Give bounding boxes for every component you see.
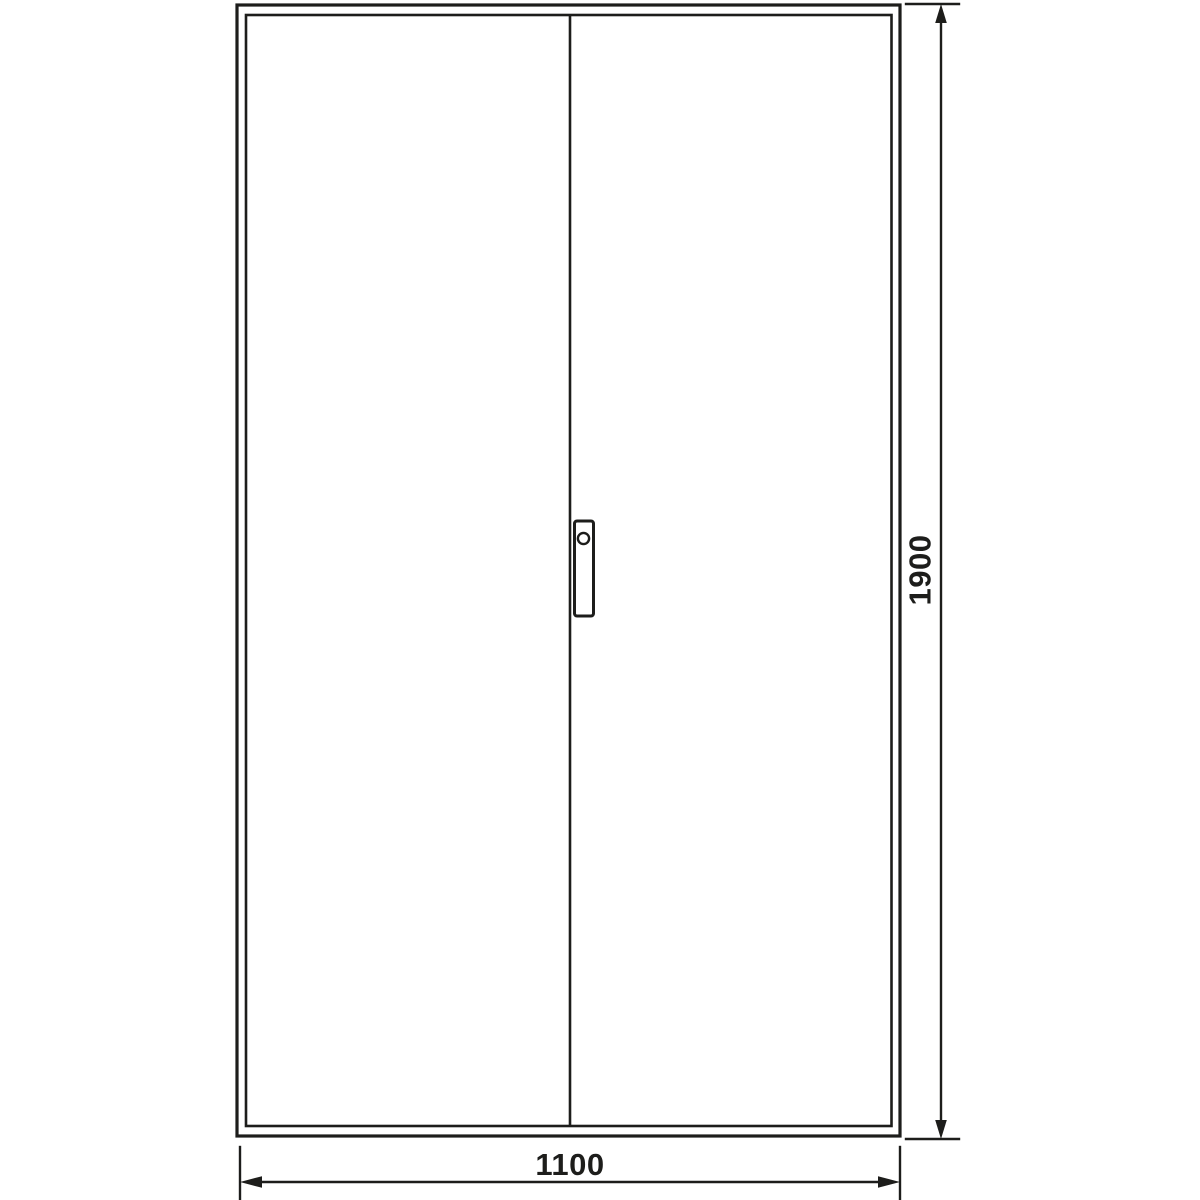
height-dim-arrow-up-icon — [935, 4, 947, 23]
width-dim-arrow-right-icon — [878, 1176, 900, 1188]
width-dim-arrow-left-icon — [240, 1176, 262, 1188]
height-dim-arrow-down-icon — [935, 1120, 947, 1139]
technical-drawing-canvas: 1900 1100 — [0, 0, 1200, 1200]
width-dimension-label: 1100 — [535, 1147, 604, 1182]
drawing-root: 1900 1100 — [237, 4, 959, 1200]
cabinet-outer-frame — [237, 5, 900, 1136]
enclosure-front-view-drawing: 1900 1100 — [0, 0, 1200, 1200]
handle-lock-circle — [578, 533, 589, 544]
height-dimension-label: 1900 — [903, 535, 938, 606]
